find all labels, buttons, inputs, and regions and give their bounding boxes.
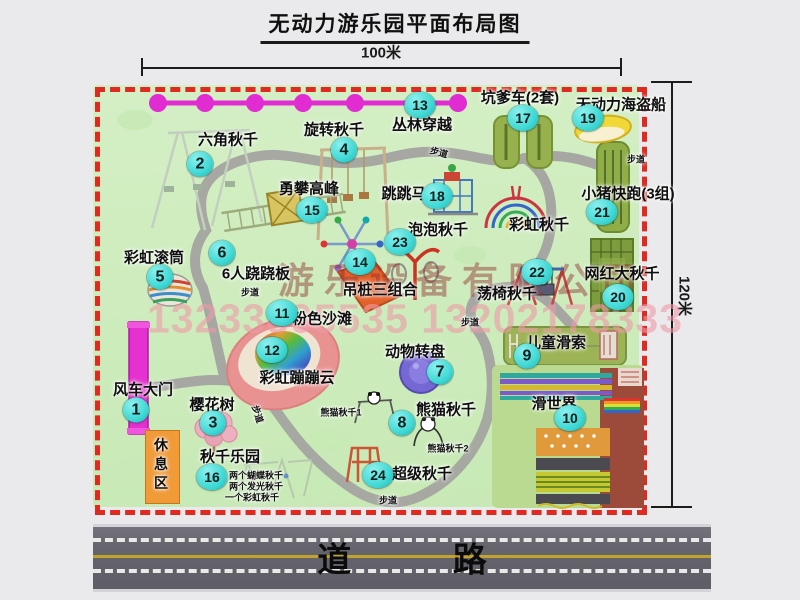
- watermark-phone: 13233805535 13202178333: [147, 296, 683, 343]
- page-title: 无动力游乐园平面布局图: [261, 8, 530, 44]
- rest-area-box: [145, 430, 180, 504]
- road-label: 道 路: [271, 533, 532, 582]
- width-dimension-line: [142, 67, 622, 69]
- amusement-park-plan: 无动力游乐园平面布局图 100米 120米: [0, 0, 800, 600]
- height-dimension-tick-top: [651, 81, 692, 83]
- height-dimension-tick-bottom: [651, 506, 692, 508]
- width-dimension-tick-left: [141, 58, 143, 76]
- width-dimension-label: 100米: [361, 42, 401, 63]
- road: 道 路: [93, 524, 711, 592]
- width-dimension-tick-right: [620, 58, 622, 76]
